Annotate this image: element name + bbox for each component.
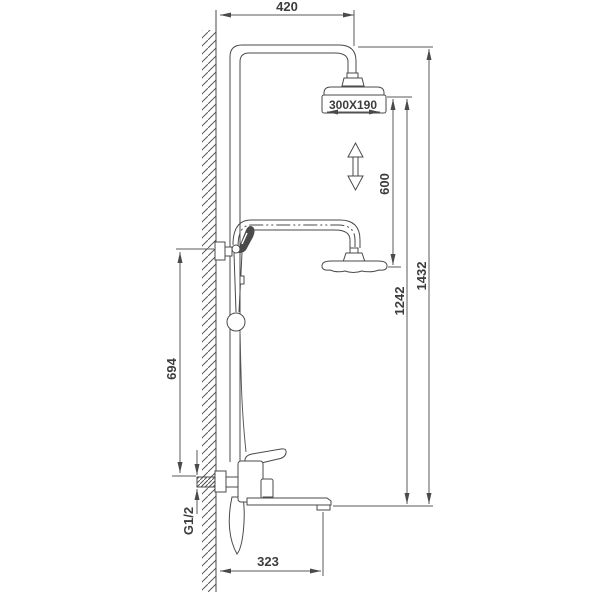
spout-nub (317, 505, 330, 510)
inlet-connector (226, 477, 238, 487)
overhead-shower-head: 300X190 (322, 73, 386, 113)
head-connector (347, 73, 358, 78)
holder-lock (240, 276, 244, 284)
bracket-connector (225, 247, 232, 256)
phantom-centerline (238, 225, 355, 247)
dim-323-label: 323 (257, 554, 279, 569)
shower-hose (240, 331, 246, 452)
dim-600-label: 600 (377, 173, 392, 195)
dimension-420: 420 (220, 0, 354, 46)
dim-1432-label: 1432 (414, 262, 429, 291)
slider-knob (227, 313, 245, 331)
height-adjust-arrow (348, 143, 363, 190)
shower-column-diagram: 300X190 (0, 0, 600, 600)
inlet-flange (215, 471, 226, 492)
mixer-body (238, 461, 263, 502)
callout-g12: G1/2 (181, 450, 197, 535)
wall (202, 10, 216, 592)
dimension-1432: 1432 (333, 47, 433, 506)
holder-clamp (232, 245, 240, 253)
g12-label: G1/2 (181, 507, 196, 535)
hand-shower (215, 226, 255, 452)
wall-bracket (215, 242, 225, 260)
dim-420-label: 420 (276, 0, 298, 14)
technical-drawing: 300X190 (0, 0, 600, 600)
lowered-shower-head (322, 261, 387, 273)
inlet-stub (197, 477, 215, 487)
dimension-1242: 1242 (392, 99, 407, 504)
head-nut (342, 78, 364, 86)
wall-hatching (202, 30, 216, 592)
mixer-valve (197, 449, 331, 510)
head-dome (324, 87, 384, 95)
dim-694-label: 694 (164, 357, 179, 379)
hose-loop (229, 497, 244, 554)
lowered-arm-phantom (233, 220, 387, 273)
dim-1242-label: 1242 (392, 287, 407, 316)
head-size-label: 300X190 (329, 98, 377, 112)
spout-shelf (247, 498, 331, 505)
